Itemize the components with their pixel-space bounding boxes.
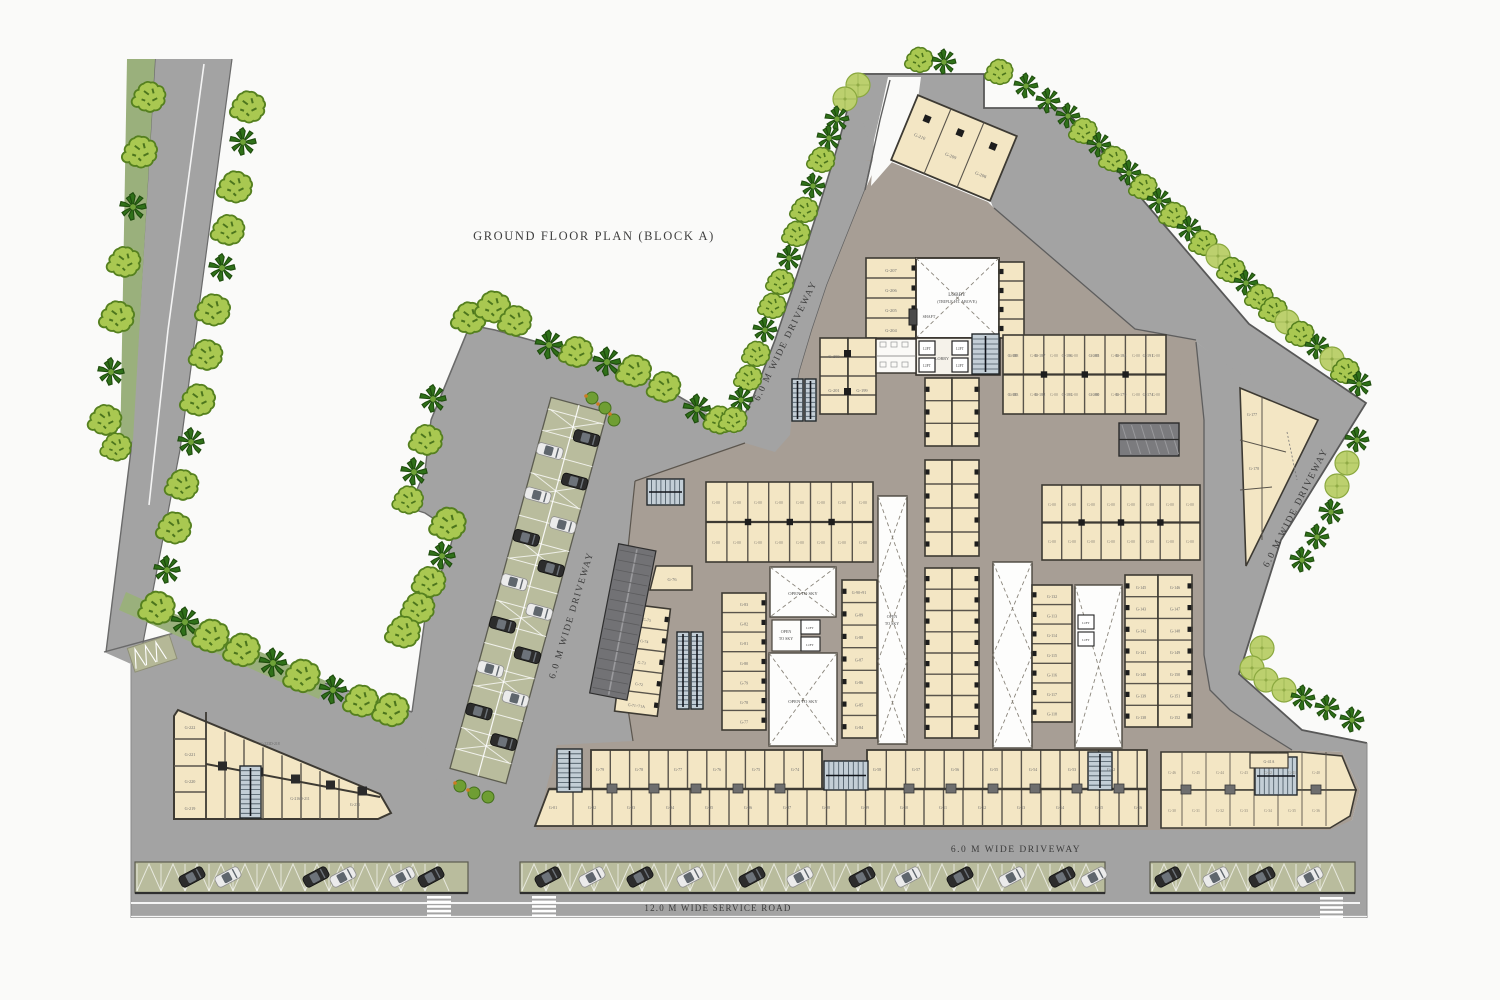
- svg-text:G-00: G-00: [817, 541, 825, 545]
- svg-text:G-191: G-191: [1143, 353, 1154, 358]
- svg-text:6.0 M WIDE DRIVEWAY: 6.0 M WIDE DRIVEWAY: [951, 845, 1081, 855]
- svg-text:G-201: G-201: [828, 388, 839, 393]
- svg-text:G-216D-211: G-216D-211: [290, 797, 309, 801]
- svg-text:G-89: G-89: [855, 613, 863, 618]
- svg-text:G-01: G-01: [549, 805, 557, 810]
- svg-text:G-00: G-00: [1068, 540, 1076, 544]
- svg-text:G-85: G-85: [855, 703, 863, 708]
- svg-text:G-178: G-178: [1249, 466, 1259, 471]
- svg-text:G-231: G-231: [350, 802, 360, 807]
- svg-text:G-54: G-54: [1029, 767, 1037, 772]
- svg-text:G-183: G-183: [1008, 392, 1019, 397]
- svg-text:G-83: G-83: [740, 602, 748, 607]
- svg-text:LIFT: LIFT: [956, 347, 964, 351]
- svg-text:G-00: G-00: [754, 501, 762, 505]
- svg-text:G-223D-218: G-223D-218: [260, 742, 280, 746]
- svg-text:G-00: G-00: [1146, 540, 1154, 544]
- svg-text:G-180: G-180: [1089, 392, 1100, 397]
- svg-text:G-86: G-86: [855, 680, 863, 685]
- svg-text:G-43: G-43: [1240, 771, 1248, 775]
- svg-text:LIFT: LIFT: [1082, 621, 1090, 625]
- svg-text:G-00: G-00: [859, 501, 867, 505]
- svg-text:G-76: G-76: [667, 577, 677, 582]
- svg-text:OPEN TO SKY: OPEN TO SKY: [788, 699, 818, 704]
- svg-text:G-76: G-76: [713, 767, 721, 772]
- svg-text:G-05: G-05: [705, 805, 713, 810]
- svg-text:G-00: G-00: [1107, 540, 1115, 544]
- svg-text:G-72: G-72: [635, 681, 644, 687]
- svg-text:G-02: G-02: [588, 805, 596, 810]
- svg-text:G-117: G-117: [1047, 692, 1057, 697]
- svg-text:G-09: G-09: [861, 805, 869, 810]
- svg-text:G-00: G-00: [1087, 503, 1095, 507]
- svg-text:G-06: G-06: [744, 805, 752, 810]
- svg-text:G-00: G-00: [1107, 503, 1115, 507]
- svg-text:G-75: G-75: [752, 767, 760, 772]
- svg-text:G-00: G-00: [838, 501, 846, 505]
- svg-text:G-181: G-181: [1062, 392, 1073, 397]
- svg-text:G-184: G-184: [1116, 353, 1128, 358]
- svg-text:G-186: G-186: [1062, 353, 1073, 358]
- svg-text:OPEN: OPEN: [887, 614, 898, 619]
- svg-text:G-00: G-00: [1186, 503, 1194, 507]
- svg-text:G-16: G-16: [1134, 805, 1142, 810]
- svg-text:G-00: G-00: [1166, 503, 1174, 507]
- svg-text:G-179: G-179: [1116, 392, 1127, 397]
- svg-text:G-00: G-00: [859, 541, 867, 545]
- svg-text:OPEN TO SKY: OPEN TO SKY: [788, 591, 818, 596]
- svg-text:G-80: G-80: [740, 661, 748, 666]
- svg-text:G-42: G-42: [1264, 771, 1272, 775]
- svg-text:LIFT: LIFT: [806, 643, 814, 647]
- svg-text:G-75: G-75: [643, 617, 652, 623]
- svg-text:G-00: G-00: [1166, 540, 1174, 544]
- svg-text:G-41A: G-41A: [1263, 759, 1274, 764]
- svg-text:G-115: G-115: [1047, 653, 1057, 658]
- svg-text:LOBBY: LOBBY: [935, 356, 949, 361]
- svg-text:G-132: G-132: [1047, 594, 1057, 599]
- svg-text:G-10: G-10: [900, 805, 908, 810]
- svg-text:(TRIPLE HT. ABOVE): (TRIPLE HT. ABOVE): [937, 299, 977, 304]
- svg-text:LIFT: LIFT: [956, 364, 964, 368]
- svg-text:G-77: G-77: [740, 720, 748, 725]
- svg-text:OPEN: OPEN: [781, 629, 792, 634]
- svg-text:G-00: G-00: [1132, 354, 1140, 358]
- svg-text:G-185: G-185: [1089, 353, 1100, 358]
- svg-text:G-150: G-150: [1170, 672, 1180, 677]
- svg-text:G-56: G-56: [951, 767, 959, 772]
- svg-text:G-90+91: G-90+91: [852, 590, 866, 595]
- svg-text:G-114: G-114: [1047, 633, 1057, 638]
- svg-text:G-08: G-08: [822, 805, 830, 810]
- svg-text:G-81: G-81: [740, 641, 748, 646]
- svg-text:G-113: G-113: [1047, 614, 1057, 619]
- svg-text:G-36: G-36: [1312, 809, 1320, 813]
- svg-text:G-53: G-53: [1068, 767, 1076, 772]
- svg-text:G-84: G-84: [855, 725, 863, 730]
- svg-text:G-74: G-74: [640, 638, 649, 644]
- svg-text:SHAFT: SHAFT: [923, 314, 936, 319]
- svg-text:G-34: G-34: [1264, 809, 1272, 813]
- svg-text:G-00: G-00: [1127, 540, 1135, 544]
- svg-text:G-140: G-140: [1136, 672, 1146, 677]
- svg-text:G-00: G-00: [1146, 503, 1154, 507]
- svg-text:G-116: G-116: [1047, 672, 1057, 677]
- svg-text:G-182: G-182: [1035, 392, 1046, 397]
- svg-text:LOBBY: LOBBY: [948, 292, 966, 298]
- svg-text:G-32: G-32: [1216, 809, 1224, 813]
- svg-text:G-30: G-30: [1168, 809, 1176, 813]
- svg-text:G-79: G-79: [740, 680, 748, 685]
- svg-text:G-00: G-00: [754, 541, 762, 545]
- svg-text:G-15: G-15: [1095, 805, 1103, 810]
- svg-text:G-147: G-147: [1170, 607, 1180, 612]
- svg-text:G-44: G-44: [1216, 771, 1224, 775]
- svg-text:G-00: G-00: [1127, 503, 1135, 507]
- svg-text:LIFT: LIFT: [923, 347, 931, 351]
- svg-text:G-199: G-199: [856, 388, 868, 393]
- svg-text:G-00: G-00: [796, 541, 804, 545]
- svg-text:G-00: G-00: [1050, 393, 1058, 397]
- svg-text:G-03: G-03: [627, 805, 635, 810]
- svg-text:G-52: G-52: [1107, 767, 1115, 772]
- svg-text:G-41: G-41: [1288, 771, 1296, 775]
- svg-text:G-00: G-00: [712, 501, 720, 505]
- svg-text:G-141: G-141: [1136, 650, 1146, 655]
- svg-text:G-177: G-177: [1247, 412, 1257, 417]
- svg-text:G-00: G-00: [1132, 393, 1140, 397]
- svg-text:G-77: G-77: [674, 767, 682, 772]
- svg-text:G-00: G-00: [796, 501, 804, 505]
- svg-text:G-143: G-143: [1136, 607, 1146, 612]
- svg-text:G-205: G-205: [885, 308, 897, 313]
- svg-text:G-58: G-58: [873, 767, 881, 772]
- svg-text:G-203: G-203: [828, 354, 840, 359]
- svg-text:G-222: G-222: [185, 725, 196, 730]
- svg-text:G-40: G-40: [1312, 771, 1320, 775]
- svg-text:G-35: G-35: [1288, 809, 1296, 813]
- svg-text:G-00: G-00: [775, 541, 783, 545]
- svg-text:LIFT: LIFT: [923, 364, 931, 368]
- svg-text:TO SKY: TO SKY: [779, 636, 793, 641]
- svg-text:G-207: G-207: [885, 268, 897, 273]
- svg-text:G-57: G-57: [912, 767, 920, 772]
- svg-text:G-00: G-00: [817, 501, 825, 505]
- svg-text:G-11: G-11: [939, 805, 947, 810]
- svg-text:G-74: G-74: [791, 767, 799, 772]
- svg-text:G-148: G-148: [1170, 628, 1180, 633]
- svg-text:G-78: G-78: [635, 767, 643, 772]
- svg-text:G-219: G-219: [185, 806, 196, 811]
- svg-text:G-46: G-46: [1168, 771, 1176, 775]
- svg-text:G-00: G-00: [838, 541, 846, 545]
- svg-text:GROUND FLOOR PLAN (BLOCK A): GROUND FLOOR PLAN (BLOCK A): [473, 229, 715, 243]
- svg-text:G-00: G-00: [733, 541, 741, 545]
- svg-text:G-00: G-00: [733, 501, 741, 505]
- svg-text:G-55: G-55: [990, 767, 998, 772]
- svg-text:G-188: G-188: [1008, 353, 1019, 358]
- svg-text:G-14: G-14: [1056, 805, 1064, 810]
- svg-text:G-220: G-220: [185, 779, 196, 784]
- svg-text:G-33: G-33: [1240, 809, 1248, 813]
- svg-text:G-00: G-00: [1087, 540, 1095, 544]
- svg-text:G-146: G-146: [1170, 585, 1180, 590]
- svg-text:G-04: G-04: [666, 805, 674, 810]
- svg-text:12.0 M WIDE SERVICE ROAD: 12.0 M WIDE SERVICE ROAD: [644, 903, 791, 913]
- svg-text:G-118: G-118: [1047, 712, 1057, 717]
- svg-text:G-00: G-00: [1186, 540, 1194, 544]
- svg-text:G-145: G-145: [1136, 585, 1146, 590]
- svg-text:G-78: G-78: [740, 700, 748, 705]
- svg-text:TO SKY: TO SKY: [885, 621, 899, 626]
- svg-text:G-07: G-07: [783, 805, 791, 810]
- svg-text:G-45: G-45: [1192, 771, 1200, 775]
- svg-text:G-152: G-152: [1170, 715, 1180, 720]
- svg-text:G-00: G-00: [1048, 540, 1056, 544]
- svg-text:LIFT: LIFT: [1082, 638, 1090, 642]
- svg-text:G-31: G-31: [1192, 809, 1200, 813]
- svg-text:G-12: G-12: [978, 805, 986, 810]
- svg-text:G-79: G-79: [596, 767, 604, 772]
- svg-text:G-73: G-73: [637, 660, 646, 666]
- svg-text:G-151: G-151: [1170, 694, 1180, 699]
- svg-text:G-149: G-149: [1170, 650, 1180, 655]
- svg-text:G-174: G-174: [1143, 392, 1155, 397]
- svg-text:G-00: G-00: [712, 541, 720, 545]
- svg-text:G-13: G-13: [1017, 805, 1025, 810]
- svg-text:G-139: G-139: [1136, 694, 1146, 699]
- svg-text:G-00: G-00: [1068, 503, 1076, 507]
- svg-text:G-82: G-82: [740, 622, 748, 627]
- svg-text:G-00: G-00: [775, 501, 783, 505]
- svg-text:G-87: G-87: [855, 658, 863, 663]
- svg-text:G-00: G-00: [1050, 354, 1058, 358]
- svg-text:LIFT: LIFT: [806, 626, 814, 630]
- svg-text:G-00: G-00: [1048, 503, 1056, 507]
- svg-text:G-88: G-88: [855, 635, 863, 640]
- svg-text:G-204: G-204: [885, 328, 897, 333]
- svg-text:G-138: G-138: [1136, 715, 1146, 720]
- svg-text:G-221: G-221: [185, 752, 196, 757]
- svg-text:G-206: G-206: [885, 288, 897, 293]
- svg-text:G-187: G-187: [1035, 353, 1046, 358]
- svg-text:G-142: G-142: [1136, 628, 1146, 633]
